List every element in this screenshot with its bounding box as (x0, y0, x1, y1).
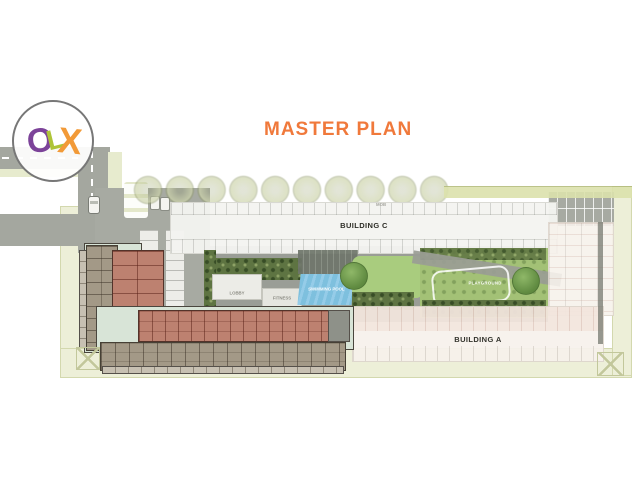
building-c: BUILDING C (170, 202, 558, 254)
building-a: BUILDING A (352, 306, 604, 362)
building-a-vertical-wing (548, 222, 614, 316)
corner-x-marker (597, 352, 624, 376)
car-icon (88, 196, 100, 214)
site-edge-right (612, 186, 632, 376)
building-a-label: BUILDING A (353, 335, 603, 344)
tree-icon (512, 267, 540, 295)
building-c-label: BUILDING C (171, 221, 557, 230)
building-edge-line (598, 222, 603, 344)
hedge-strip (444, 186, 632, 198)
tree-icon (340, 262, 368, 290)
building-b-units-row-upper (138, 310, 350, 342)
building-c-units-top (171, 203, 557, 215)
page-title: MASTER PLAN (264, 119, 412, 141)
playground-label: PLAYGROUND (468, 282, 501, 286)
building-b-units-corner (112, 250, 164, 310)
mob-label: MOB (376, 203, 386, 207)
fitness-label: FITNESS (268, 297, 295, 301)
corner-x-marker (76, 347, 100, 370)
building-a-units-bottom (353, 346, 603, 361)
balcony-strip (102, 366, 344, 374)
lobby-label: LOBBY (220, 292, 255, 296)
olx-logo: O L X (12, 100, 94, 182)
master-plan-canvas: BUILDING C MOB LOBBY FITNESS SWIMMING PO… (0, 0, 640, 480)
stair-block (328, 310, 350, 342)
olx-letter-x: X (56, 119, 81, 163)
lobby-block: LOBBY (212, 274, 262, 300)
swimming-pool-label: SWIMMING POOL (308, 287, 345, 291)
building-a-units-top (353, 307, 603, 331)
road-entrance-stub (0, 214, 96, 246)
road-curb (108, 152, 122, 192)
